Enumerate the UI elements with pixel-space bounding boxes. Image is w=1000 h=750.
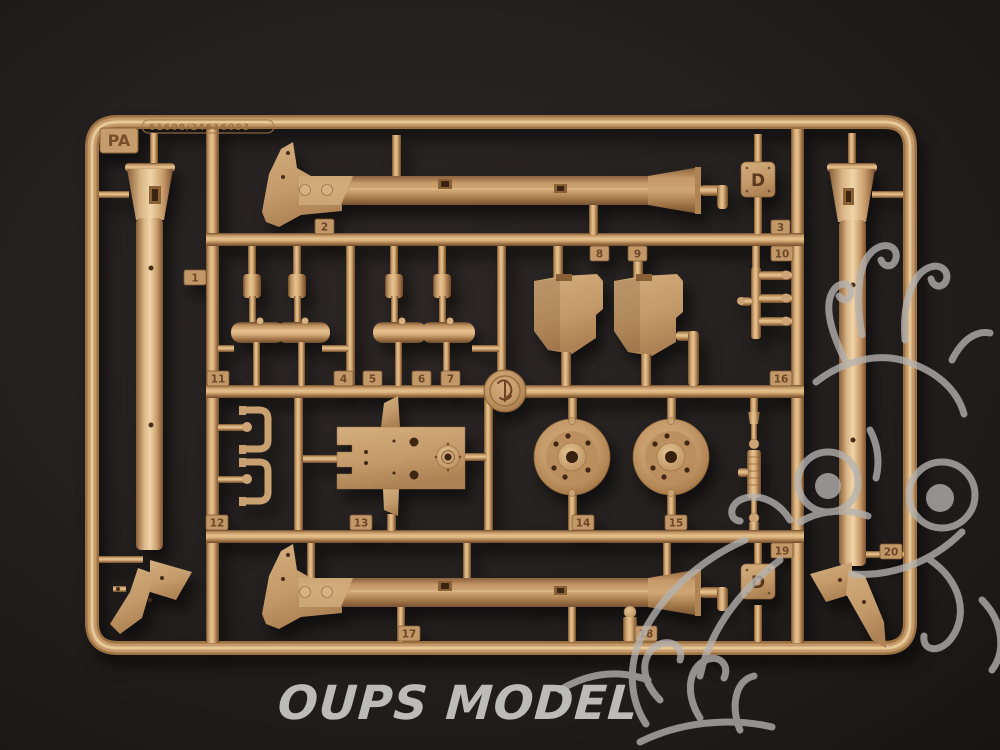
part-4-cylinder [231, 246, 285, 386]
part-9-shield-plate [614, 246, 699, 386]
part-tab-3: 3 [771, 220, 790, 234]
part-6-cylinder [373, 246, 427, 386]
svg-text:8: 8 [596, 249, 603, 261]
part-2-beam-assembly: D [262, 142, 775, 227]
svg-text:11: 11 [211, 374, 226, 386]
dragon-nose [870, 430, 878, 478]
part-17-beam-assembly [262, 544, 775, 629]
gate-letter-tab: PA [100, 128, 138, 153]
part-8-shield-plate [534, 246, 603, 386]
part-tab-2: 2 [315, 219, 334, 234]
svg-text:14: 14 [576, 518, 591, 530]
d-marked-square-part: D [741, 162, 775, 197]
dragon-ear [952, 332, 990, 360]
part-tab-9: 9 [628, 246, 647, 261]
part-tab-13: 13 [350, 515, 372, 530]
dragon-eye-pupil [815, 473, 841, 499]
part-tab-8: 8 [590, 246, 609, 261]
svg-text:7: 7 [447, 374, 454, 386]
dragon-mane-curl [982, 600, 1000, 670]
product-photo: PA 61608/24616093 [0, 0, 1000, 750]
part-tab-15: 15 [665, 515, 687, 530]
mold-number: 61608/24616093 [149, 123, 251, 133]
svg-text:5: 5 [369, 374, 376, 386]
dragon-brow [816, 358, 964, 414]
svg-text:20: 20 [884, 547, 899, 559]
svg-text:19: 19 [775, 546, 790, 558]
svg-text:1: 1 [191, 273, 198, 285]
maker-logo-medallion [484, 370, 526, 412]
part-14-wheel-disc [534, 398, 610, 530]
svg-text:16: 16 [774, 374, 789, 386]
part-11-handle [218, 406, 268, 454]
svg-text:6: 6 [418, 374, 425, 386]
dragon-eye-pupil [926, 484, 954, 512]
part-12-handle [218, 458, 268, 506]
brand-watermark: OUPS MODEL [276, 676, 700, 731]
gate-letter: PA [108, 131, 131, 150]
part-5-cylinder [276, 246, 330, 386]
part-tab-20: 20 [880, 544, 902, 559]
part-13-cradle-plate [337, 396, 465, 531]
part-tab-14: 14 [572, 515, 594, 530]
part-tab-5: 5 [363, 371, 382, 386]
part-tab-17: 17 [398, 626, 420, 641]
part-tab-1: 1 [184, 270, 206, 285]
svg-text:2: 2 [321, 222, 328, 234]
sprue: PA 61608/24616093 [92, 120, 910, 648]
dragon-mane-curl [924, 560, 961, 649]
part-16-segmented-rod [738, 398, 761, 530]
part-tab-6: 6 [412, 371, 431, 386]
part-15-wheel-disc [633, 398, 709, 530]
part-tab-10: 10 [771, 246, 793, 261]
svg-text:17: 17 [402, 629, 417, 641]
svg-text:12: 12 [210, 518, 225, 530]
svg-text:4: 4 [340, 374, 347, 386]
part-tab-19: 19 [771, 543, 793, 558]
part-7-cylinder [421, 246, 475, 386]
svg-text:15: 15 [669, 518, 684, 530]
dragon-nostril [732, 497, 790, 521]
part-tab-12: 12 [206, 515, 228, 530]
part-tab-16: 16 [770, 371, 792, 386]
svg-text:9: 9 [634, 249, 641, 261]
svg-text:10: 10 [775, 249, 790, 261]
d-mark: D [751, 171, 765, 191]
svg-text:3: 3 [777, 222, 784, 234]
part-tab-7: 7 [441, 371, 460, 386]
part-tab-4: 4 [334, 371, 353, 386]
svg-text:13: 13 [354, 518, 369, 530]
photo-canvas: PA 61608/24616093 [0, 0, 1000, 750]
part-tab-11: 11 [207, 371, 229, 386]
